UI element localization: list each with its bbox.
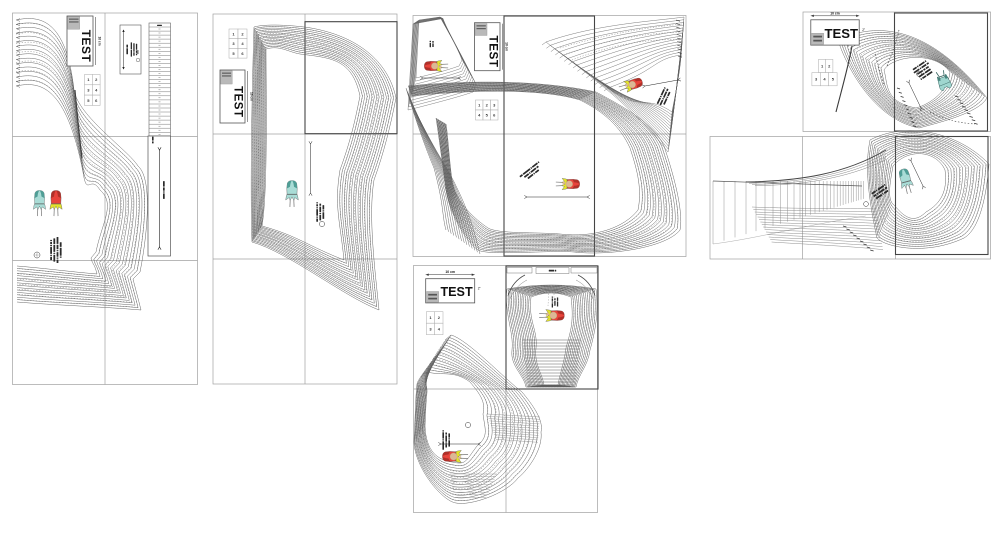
- svg-text:TEST: TEST: [79, 30, 93, 63]
- svg-text:10 cm: 10 cm: [250, 92, 254, 101]
- svg-text:10 cm: 10 cm: [505, 42, 509, 51]
- svg-text:2": 2": [478, 287, 481, 291]
- svg-text:TEST: TEST: [486, 36, 499, 68]
- svg-text:2": 2": [862, 28, 865, 32]
- svg-text:TEST: TEST: [440, 285, 472, 299]
- svg-text:10 cm: 10 cm: [830, 11, 840, 15]
- svg-text:10 cm: 10 cm: [98, 36, 102, 45]
- svg-text:10 cm: 10 cm: [445, 270, 455, 274]
- svg-text:TEST: TEST: [232, 86, 244, 117]
- svg-text:TEST: TEST: [824, 26, 858, 41]
